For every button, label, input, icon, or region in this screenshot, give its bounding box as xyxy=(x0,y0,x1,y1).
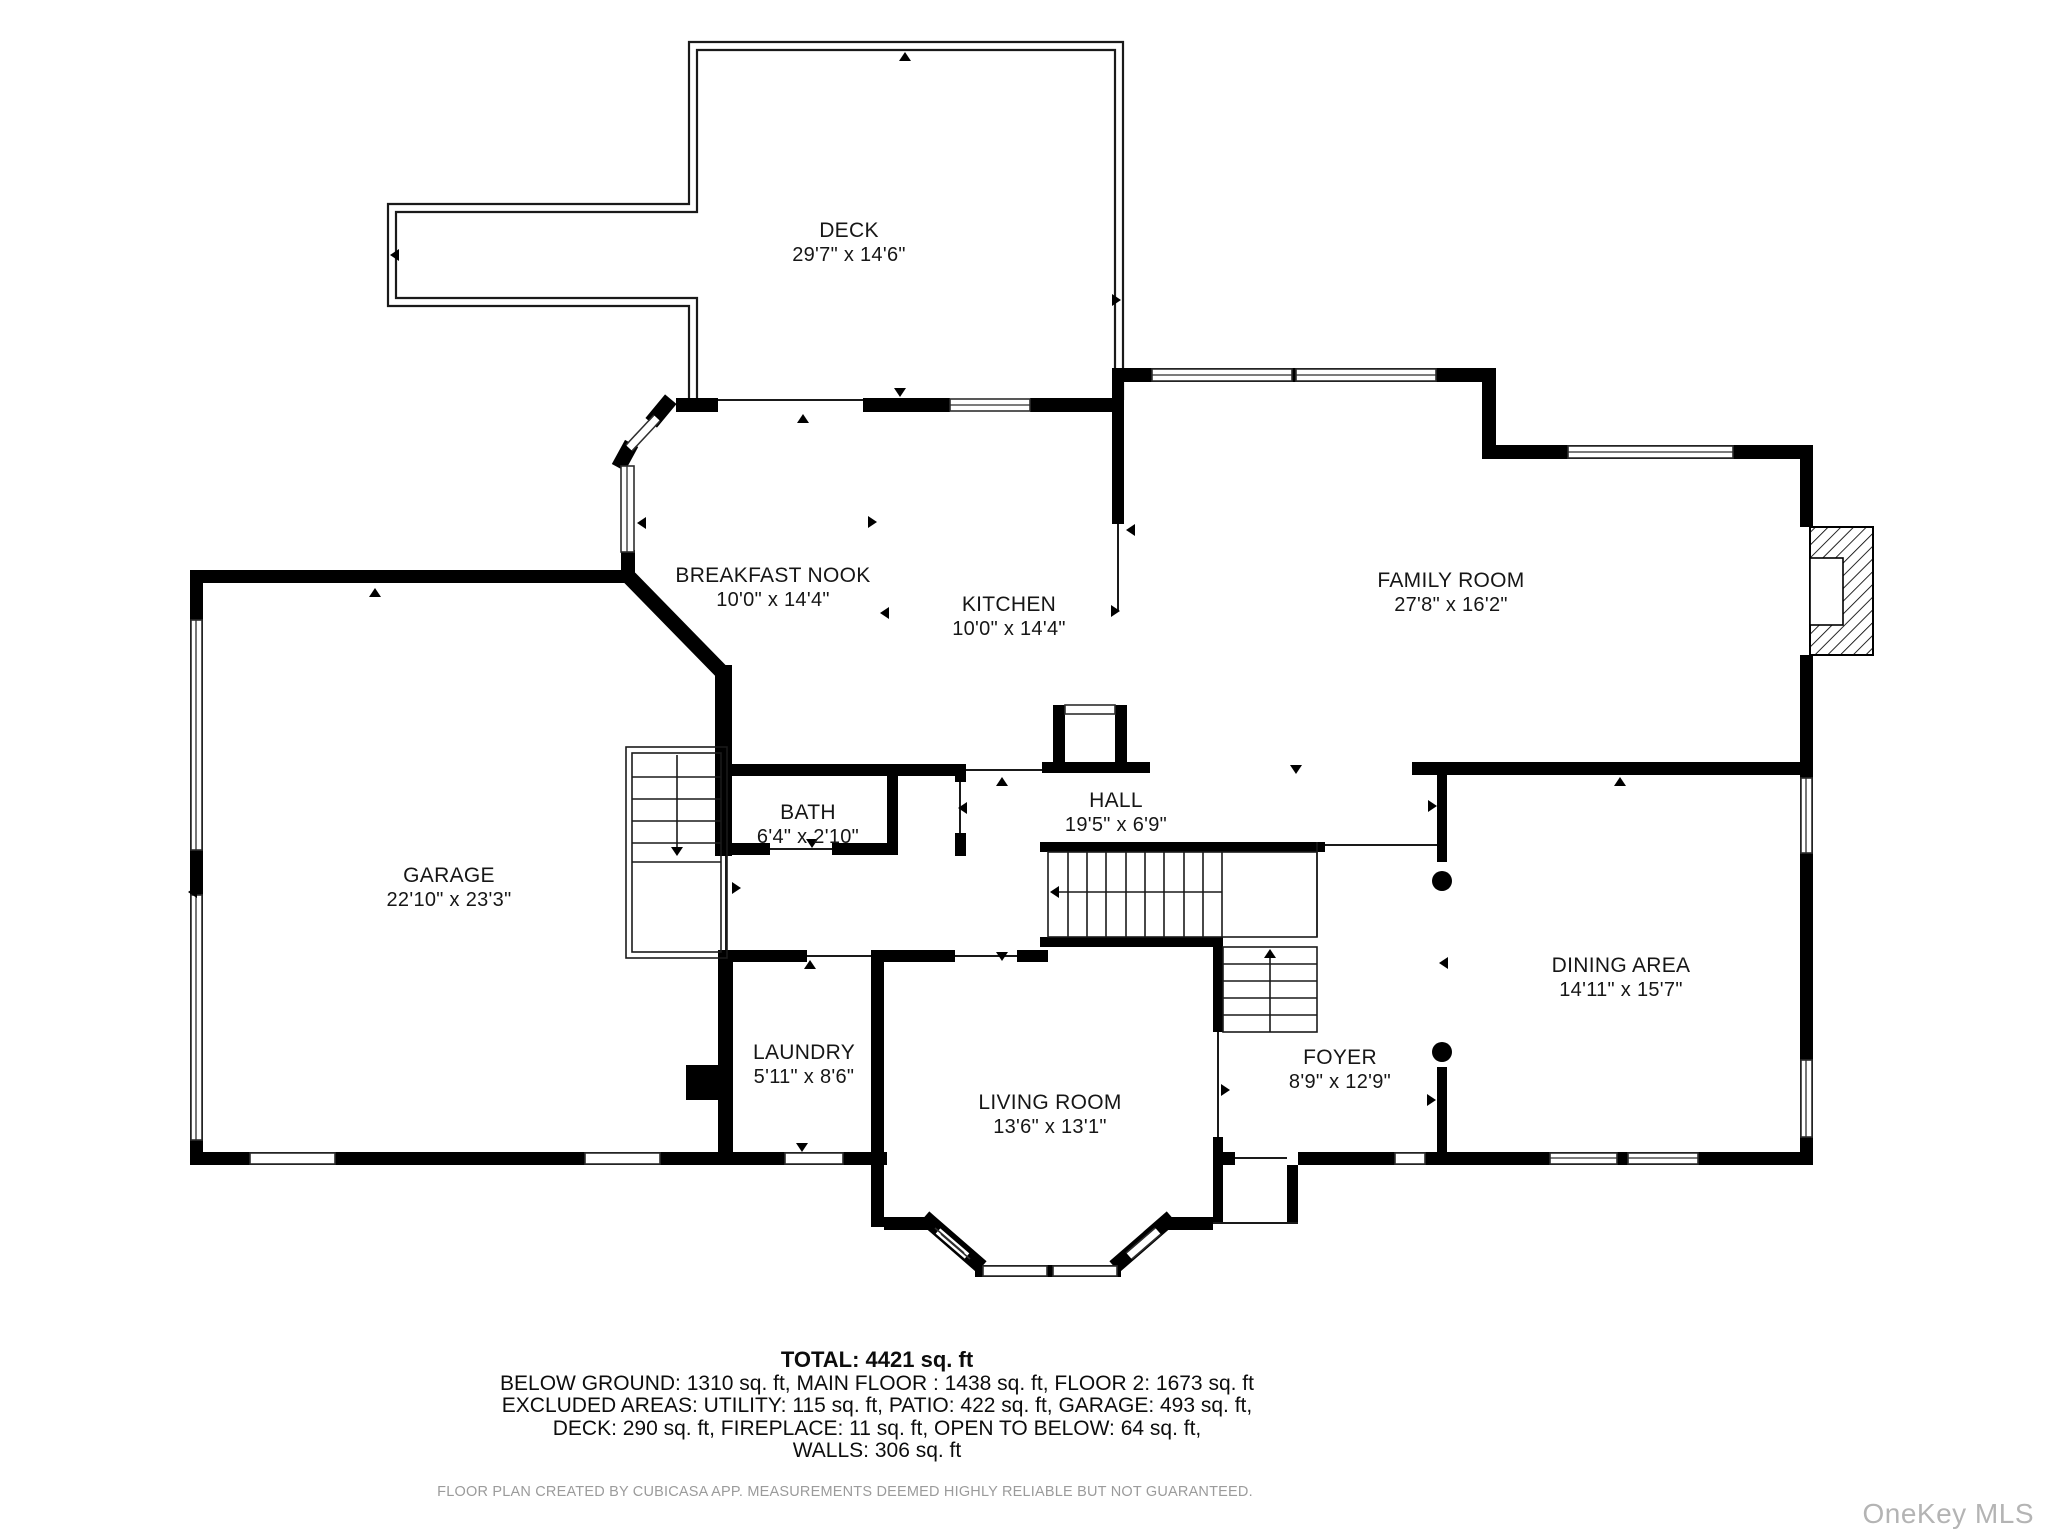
room-label-dining-area: DINING AREA14'11" x 15'7" xyxy=(1552,954,1691,1002)
floor-plan: DECK29'7" x 14'6"BREAKFAST NOOK10'0" x 1… xyxy=(0,0,2048,1536)
room-label-deck: DECK29'7" x 14'6" xyxy=(792,219,906,267)
fireplace xyxy=(1810,527,1873,655)
room-label-living-room: LIVING ROOM13'6" x 13'1" xyxy=(978,1091,1121,1139)
room-label-bath: BATH6'4" x 2'10" xyxy=(757,801,859,849)
room-label-kitchen: KITCHEN10'0" x 14'4" xyxy=(952,593,1066,641)
room-name: LAUNDRY xyxy=(753,1041,855,1065)
disclaimer-text: FLOOR PLAN CREATED BY CUBICASA APP. MEAS… xyxy=(245,1484,1445,1500)
room-dimensions: 29'7" x 14'6" xyxy=(792,243,906,267)
room-name: KITCHEN xyxy=(952,593,1066,617)
room-dimensions: 14'11" x 15'7" xyxy=(1552,978,1691,1002)
room-label-hall: HALL19'5" x 6'9" xyxy=(1065,789,1167,837)
total-area: TOTAL: 4421 sq. ft xyxy=(277,1349,1477,1372)
room-dimensions: 10'0" x 14'4" xyxy=(675,588,870,612)
windows xyxy=(191,369,1812,1276)
hall-stairs xyxy=(1048,842,1317,1032)
room-label-laundry: LAUNDRY5'11" x 8'6" xyxy=(753,1041,855,1089)
room-name: DINING AREA xyxy=(1552,954,1691,978)
room-label-family-room: FAMILY ROOM27'8" x 16'2" xyxy=(1377,569,1524,617)
summary-line: BELOW GROUND: 1310 sq. ft, MAIN FLOOR : … xyxy=(277,1373,1477,1396)
room-dimensions: 13'6" x 13'1" xyxy=(978,1115,1121,1139)
floor-plan-drawing xyxy=(0,0,2048,1536)
room-label-garage: GARAGE22'10" x 23'3" xyxy=(386,864,511,912)
room-dimensions: 19'5" x 6'9" xyxy=(1065,813,1167,837)
summary-line: DECK: 290 sq. ft, FIREPLACE: 11 sq. ft, … xyxy=(277,1418,1477,1441)
columns xyxy=(1432,871,1452,1062)
room-name: GARAGE xyxy=(386,864,511,888)
room-dimensions: 6'4" x 2'10" xyxy=(757,825,859,849)
area-summary: TOTAL: 4421 sq. ft BELOW GROUND: 1310 sq… xyxy=(277,1349,1477,1463)
room-label-breakfast-nook: BREAKFAST NOOK10'0" x 14'4" xyxy=(675,564,870,612)
room-dimensions: 27'8" x 16'2" xyxy=(1377,593,1524,617)
room-dimensions: 22'10" x 23'3" xyxy=(386,888,511,912)
watermark: OneKey MLS xyxy=(1862,1498,2034,1530)
room-dimensions: 10'0" x 14'4" xyxy=(952,617,1066,641)
room-name: DECK xyxy=(792,219,906,243)
walls xyxy=(190,368,1813,1277)
room-dimensions: 5'11" x 8'6" xyxy=(753,1065,855,1089)
room-name: BREAKFAST NOOK xyxy=(675,564,870,588)
room-name: FAMILY ROOM xyxy=(1377,569,1524,593)
room-label-foyer: FOYER8'9" x 12'9" xyxy=(1289,1046,1391,1094)
room-dimensions: 8'9" x 12'9" xyxy=(1289,1070,1391,1094)
room-name: HALL xyxy=(1065,789,1167,813)
summary-line: WALLS: 306 sq. ft xyxy=(277,1440,1477,1463)
room-name: LIVING ROOM xyxy=(978,1091,1121,1115)
room-name: BATH xyxy=(757,801,859,825)
summary-line: EXCLUDED AREAS: UTILITY: 115 sq. ft, PAT… xyxy=(277,1395,1477,1418)
deck-outline xyxy=(388,42,1123,400)
room-name: FOYER xyxy=(1289,1046,1391,1070)
